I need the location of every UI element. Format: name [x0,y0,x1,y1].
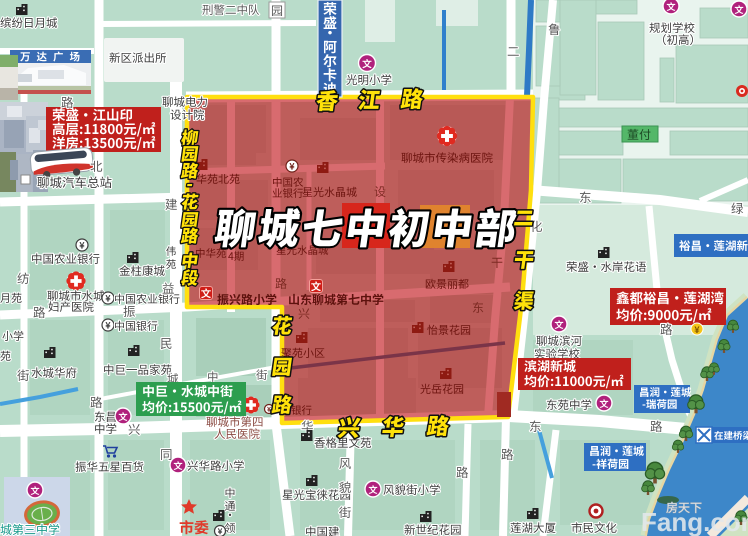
svg-text:Fang.com: Fang.com [641,507,748,536]
